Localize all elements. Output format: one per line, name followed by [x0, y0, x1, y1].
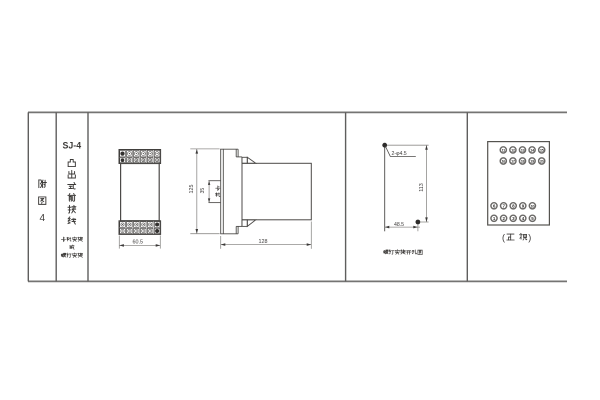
svg-text:17: 17 — [511, 160, 515, 164]
svg-text:11: 11 — [502, 149, 506, 153]
svg-text:16: 16 — [501, 160, 505, 164]
svg-text:10: 10 — [531, 204, 535, 208]
svg-text:2-φ4.5: 2-φ4.5 — [392, 151, 407, 157]
svg-text:20: 20 — [540, 160, 544, 164]
svg-text:): ) — [528, 233, 531, 243]
svg-text:113: 113 — [419, 183, 425, 192]
svg-text:18: 18 — [521, 160, 525, 164]
svg-text:128: 128 — [259, 239, 268, 245]
svg-text:12: 12 — [511, 149, 515, 153]
svg-text:SJ-4: SJ-4 — [63, 141, 82, 151]
svg-text:48.5: 48.5 — [394, 222, 404, 228]
svg-text:15: 15 — [540, 149, 544, 153]
svg-text:125: 125 — [189, 185, 195, 194]
svg-text:19: 19 — [530, 160, 534, 164]
svg-text:35: 35 — [200, 188, 206, 194]
svg-text:(: ( — [502, 233, 505, 243]
svg-text:13: 13 — [521, 149, 525, 153]
svg-text:60.5: 60.5 — [133, 240, 144, 246]
svg-text:4: 4 — [40, 213, 46, 224]
